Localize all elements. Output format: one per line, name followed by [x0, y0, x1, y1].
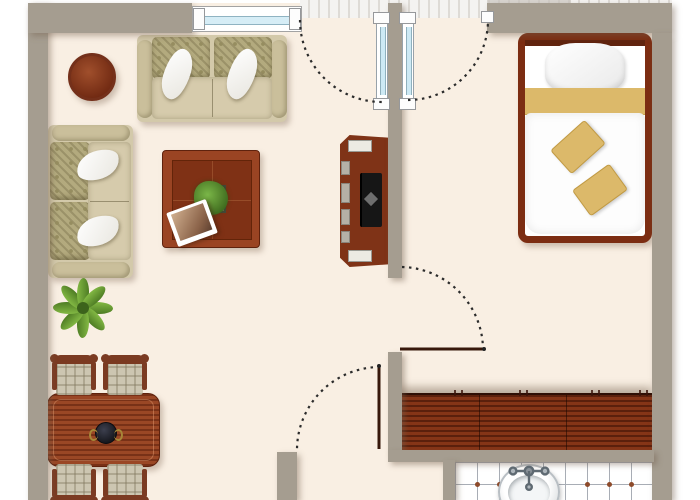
door-cap — [373, 12, 390, 24]
sofa-top — [137, 35, 287, 122]
dining-chair — [52, 355, 96, 395]
wall-left — [28, 3, 48, 500]
double-bed — [518, 33, 652, 243]
chair-post — [142, 469, 147, 497]
tv-shelf — [348, 140, 372, 152]
glass-door-right — [402, 18, 414, 104]
window-cap — [193, 8, 205, 30]
tile-dot — [629, 482, 634, 487]
coffee-table — [162, 150, 260, 248]
wall-center-upper — [388, 3, 402, 278]
floor-plan — [0, 0, 700, 500]
tv-cabinet — [340, 135, 388, 267]
wall-hall-bottom — [388, 450, 654, 462]
sink-basin — [508, 475, 550, 500]
sofa-armrest — [271, 40, 287, 118]
window-top — [192, 6, 302, 32]
chair-rail — [105, 355, 145, 364]
kitchen-counter — [398, 393, 652, 451]
wall-top-left — [28, 3, 192, 33]
dining-table — [47, 393, 160, 467]
sofa-armrest — [137, 40, 153, 118]
door-cap — [373, 98, 390, 110]
sofa-armrest — [52, 125, 130, 141]
chair-rail — [54, 355, 94, 364]
tv-hub — [364, 192, 378, 206]
round-side-table — [68, 53, 116, 101]
chair-post — [103, 362, 108, 390]
door-cap — [399, 12, 416, 24]
sofa-armrest — [52, 262, 130, 278]
chair-post — [91, 469, 96, 497]
bed-blanket-band — [525, 88, 645, 115]
media-device — [341, 209, 350, 225]
potted-plant — [54, 280, 112, 336]
door-cap — [399, 98, 416, 110]
wall-center-lower — [388, 352, 402, 452]
chair-rail — [105, 495, 145, 500]
media-device — [341, 231, 350, 243]
wall-bathroom-left — [443, 460, 455, 500]
tile-dot — [607, 482, 612, 487]
glass-door-left — [376, 18, 388, 104]
chair-post — [52, 362, 57, 390]
door-strike-plate — [481, 11, 494, 23]
dining-chair — [52, 464, 96, 500]
chair-post — [142, 362, 147, 390]
centerpiece-bowl — [95, 422, 117, 444]
sofa-left — [48, 125, 133, 278]
dining-chair — [103, 355, 147, 395]
chair-post — [103, 469, 108, 497]
tv-screen — [360, 173, 382, 227]
chair-pad — [107, 464, 143, 497]
chair-rail — [54, 495, 94, 500]
media-device — [341, 183, 350, 203]
wall-right — [652, 33, 672, 500]
wall-stub-bottom-left — [277, 452, 297, 500]
chair-pad — [56, 362, 92, 395]
chair-post — [52, 469, 57, 497]
door-glass — [406, 27, 412, 95]
chair-pad — [107, 362, 143, 395]
dining-chair — [103, 464, 147, 500]
door-glass — [380, 27, 386, 95]
media-device — [341, 161, 350, 175]
tile-dot — [475, 482, 480, 487]
chair-post — [91, 362, 96, 390]
chair-pad — [56, 464, 92, 497]
window-glass — [204, 16, 290, 25]
tile-dot — [585, 482, 590, 487]
tv-shelf — [348, 250, 372, 262]
window-cap — [289, 8, 301, 30]
wall-top-right — [487, 3, 672, 33]
plant-center — [77, 302, 89, 314]
